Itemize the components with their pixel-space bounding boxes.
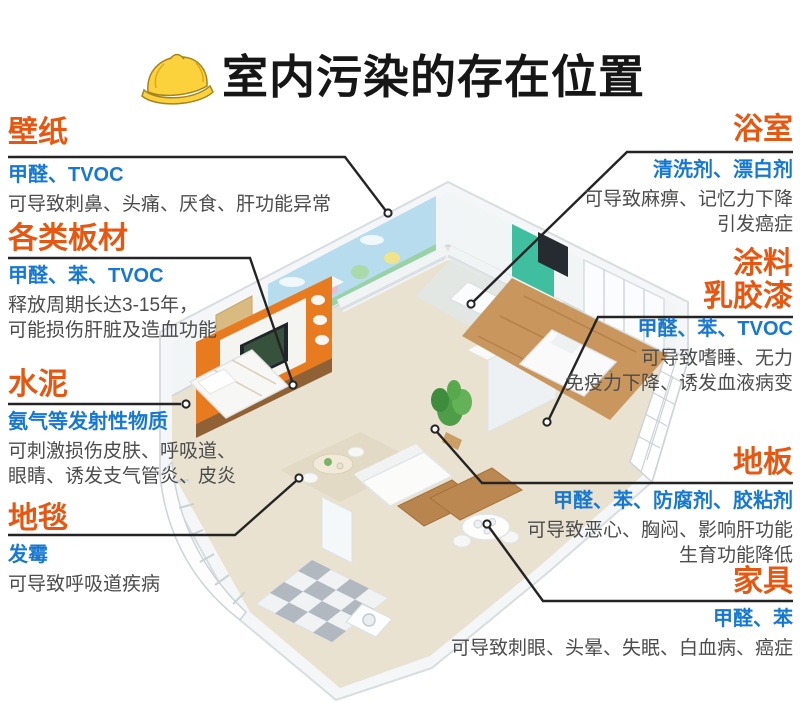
callout-title: 各类板材 xyxy=(8,222,217,255)
callout-title: 壁纸 xyxy=(8,116,331,149)
callout-effect: 可导致刺眼、头晕、失眠、白血病、癌症 xyxy=(451,637,793,662)
header: 室内污染的存在位置 xyxy=(140,48,645,106)
dot-furniture xyxy=(483,520,490,527)
callout-pollutants: 甲醛、苯、TVOC xyxy=(8,264,217,289)
callout-title: 浴室 xyxy=(584,113,793,146)
callout-paint: 涂料 乳胶漆 甲醛、苯、TVOC 可导致嗜睡、无力 免疫力下降、诱发血液病变 xyxy=(565,247,793,396)
callout-effect: 可刺激损伤皮肤、呼吸道、 xyxy=(8,440,236,465)
callout-title: 地板 xyxy=(527,446,793,479)
dot-boards xyxy=(289,381,296,388)
callout-effect: 可导致麻痹、记忆力下降 xyxy=(584,188,793,213)
callout-title: 地毯 xyxy=(8,502,160,535)
callout-effect: 免疫力下降、诱发血液病变 xyxy=(565,372,793,397)
dot-floor xyxy=(431,425,438,432)
dot-wallpaper xyxy=(384,209,391,216)
callout-effect: 释放周期长达3-15年， xyxy=(8,294,217,319)
callout-effect: 可导致嗜睡、无力 xyxy=(565,347,793,372)
dot-carpet xyxy=(295,474,302,481)
callout-pollutants: 发霉 xyxy=(8,543,160,568)
callout-effect: 眼睛、诱发支气管炎、皮炎 xyxy=(8,465,236,490)
callout-pollutants: 氨气等发射性物质 xyxy=(8,410,236,435)
callout-carpet: 地毯 发霉 可导致呼吸道疾病 xyxy=(8,502,160,598)
callout-furniture: 家具 甲醛、苯 可导致刺眼、头晕、失眠、白血病、癌症 xyxy=(451,565,793,662)
callout-effect: 可导致恶心、胸闷、影响肝功能 xyxy=(527,519,793,544)
dot-bathroom xyxy=(467,300,474,307)
callout-effect: 引发癌症 xyxy=(584,213,793,238)
callout-bathroom: 浴室 清洗剂、漂白剂 可导致麻痹、记忆力下降 引发癌症 xyxy=(584,113,793,237)
callout-effect: 可导致刺鼻、头痛、厌食、肝功能异常 xyxy=(8,193,331,218)
callout-effect: 可能损伤肝脏及造血功能 xyxy=(8,319,217,344)
callout-floor: 地板 甲醛、苯、防腐剂、胶粘剂 可导致恶心、胸闷、影响肝功能 生育功能降低 xyxy=(527,446,793,568)
hard-hat-icon xyxy=(140,48,216,106)
callout-effect: 可导致呼吸道疾病 xyxy=(8,573,160,598)
callout-pollutants: 清洗剂、漂白剂 xyxy=(584,158,793,183)
callout-title: 水泥 xyxy=(8,368,236,401)
callout-pollutants: 甲醛、TVOC xyxy=(8,163,331,188)
callout-title: 涂料 xyxy=(565,247,793,280)
callout-wallpaper: 壁纸 甲醛、TVOC 可导致刺鼻、头痛、厌食、肝功能异常 xyxy=(8,116,331,218)
callout-cement: 水泥 氨气等发射性物质 可刺激损伤皮肤、呼吸道、 眼睛、诱发支气管炎、皮炎 xyxy=(8,368,236,489)
callout-pollutants: 甲醛、苯、TVOC xyxy=(565,317,793,342)
page-title: 室内污染的存在位置 xyxy=(222,49,645,105)
callout-title: 乳胶漆 xyxy=(565,280,793,313)
callout-boards: 各类板材 甲醛、苯、TVOC 释放周期长达3-15年， 可能损伤肝脏及造血功能 xyxy=(8,222,217,343)
callout-pollutants: 甲醛、苯 xyxy=(451,607,793,632)
callout-title: 家具 xyxy=(451,565,793,598)
infographic-root: 室内污染的存在位置 壁纸 甲醛、TVOC 可导致刺鼻、头痛、厌食、肝功能异常 各… xyxy=(0,0,800,720)
dot-paint xyxy=(543,418,550,425)
callout-pollutants: 甲醛、苯、防腐剂、胶粘剂 xyxy=(527,489,793,514)
